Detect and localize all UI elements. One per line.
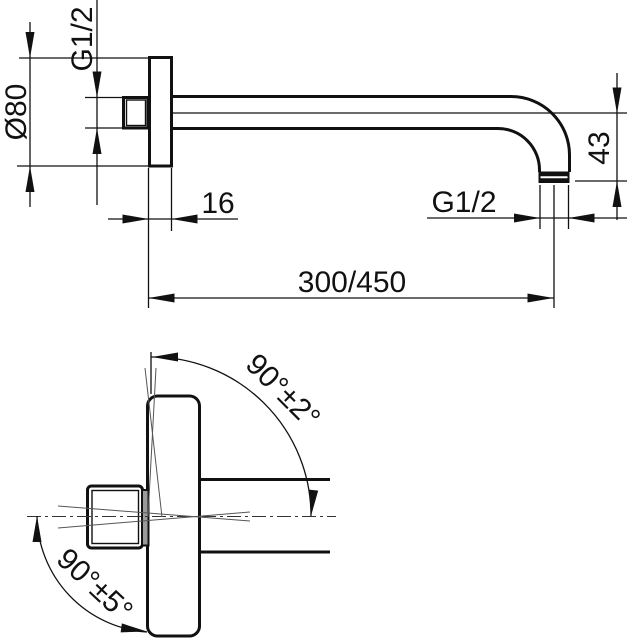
arrowhead: [172, 215, 198, 224]
arrowhead: [93, 128, 102, 154]
arm-tube-inner-contour: [172, 129, 540, 173]
dim-label-arm-length: 300/450: [298, 266, 406, 299]
arrowhead: [26, 166, 35, 192]
arrowhead: [307, 490, 319, 517]
arrowhead: [26, 32, 35, 58]
arrowhead: [613, 181, 622, 207]
dim-label-flange-diameter: Ø80: [0, 84, 33, 141]
bottom-view: 90°±2° 90°±5°: [27, 348, 336, 636]
dim-label-wall-thread: G1/2: [66, 6, 99, 71]
drawing-canvas: Ø80 G1/2 16 G1/2: [0, 0, 627, 640]
arrowhead: [33, 516, 42, 542]
arrowhead: [569, 214, 595, 223]
arrowhead: [123, 215, 149, 224]
flange-side-outline: [150, 58, 172, 167]
arrowhead: [149, 294, 175, 303]
gasket-band: [142, 490, 149, 546]
wall-thread-inner-line: [127, 100, 146, 126]
arm-tube-outer-contour: [172, 97, 570, 173]
dim-outlet-drop: 43: [575, 73, 627, 220]
top-view: Ø80 G1/2 16 G1/2: [0, 0, 627, 308]
dim-label-front-angle: 90°±2°: [239, 348, 326, 435]
arrowhead: [121, 623, 148, 636]
dim-label-outlet-thread: G1/2: [431, 186, 496, 219]
arrowhead: [514, 214, 540, 223]
dim-wall-thread: G1/2: [66, 0, 123, 205]
dim-flange-depth: 16: [108, 168, 238, 308]
dim-outlet-thread: G1/2: [427, 185, 627, 229]
arrowhead: [528, 294, 554, 303]
shower-arm-drawing: Ø80 G1/2 16 G1/2: [0, 0, 627, 640]
dim-label-flange-depth: 16: [201, 187, 234, 220]
dim-label-outlet-drop: 43: [583, 131, 616, 164]
arrowhead: [613, 88, 622, 114]
arrowhead: [152, 353, 178, 362]
arrowhead: [93, 72, 102, 98]
